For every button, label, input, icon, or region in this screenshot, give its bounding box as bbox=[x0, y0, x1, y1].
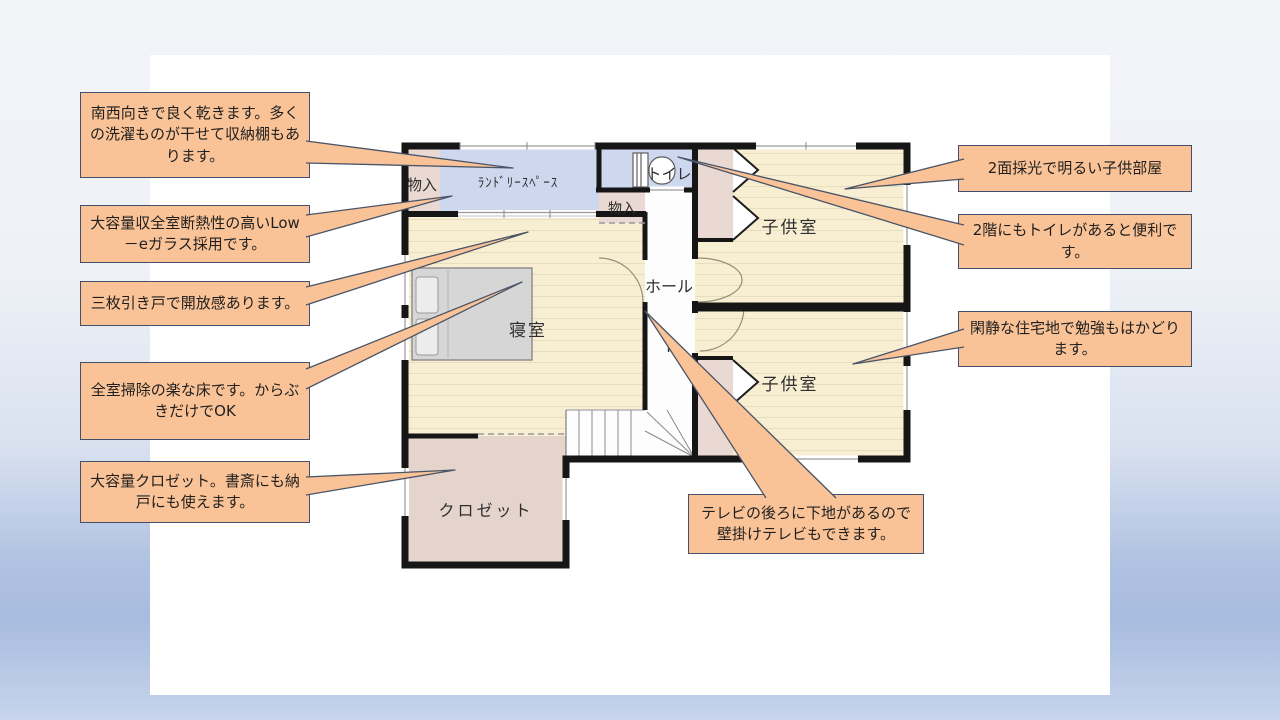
callout-closet-note: 大容量クロゼット。書斎にも納戸にも使えます。 bbox=[80, 461, 310, 523]
presentation-slide-page: { "slide": { "type": "floor-plan-present… bbox=[0, 0, 1280, 720]
callout-text: 全室掃除の楽な床です。からぶきだけでOK bbox=[89, 380, 301, 423]
callout-text: 大容量収全室断熱性の高いLow－eガラス採用です。 bbox=[89, 213, 301, 256]
room-label-hall: ホール bbox=[645, 277, 693, 296]
bed-icon bbox=[412, 268, 532, 360]
callout-text: 大容量クロゼット。書斎にも納戸にも使えます。 bbox=[89, 471, 301, 514]
room-label-kids-upper: 子供室 bbox=[762, 218, 819, 238]
room-label-storage2: 物入 bbox=[608, 201, 636, 217]
callout-text: 三枚引き戸で開放感あります。 bbox=[91, 293, 300, 314]
callout-toilet-note: 2階にもトイレがあると便利です。 bbox=[958, 214, 1192, 269]
callout-text: 南西向きで良く乾きます。多くの洗濯ものが干せて収納棚もあります。 bbox=[89, 103, 301, 167]
callout-lowe-glass-note: 大容量収全室断熱性の高いLow－eガラス採用です。 bbox=[80, 205, 310, 263]
room-label-laundry: ﾗﾝﾄﾞﾘｰｽﾍﾟｰｽ bbox=[478, 176, 559, 191]
sliding-door bbox=[458, 210, 596, 218]
north-label: N bbox=[666, 338, 677, 356]
toilet-door bbox=[650, 187, 684, 194]
callout-kids-light-note: 2面採光で明るい子供部屋 bbox=[958, 145, 1192, 192]
kids-closet-lower bbox=[695, 358, 733, 459]
room-hall bbox=[645, 190, 695, 462]
room-label-toilet: トイレ bbox=[646, 165, 691, 183]
callout-laundry-note: 南西向きで良く乾きます。多くの洗濯ものが干せて収納棚もあります。 bbox=[80, 92, 310, 178]
room-label-closet: クロゼット bbox=[438, 501, 533, 520]
callout-text: 閑静な住宅地で勉強もはかどります。 bbox=[967, 318, 1183, 361]
callout-tv-note: テレビの後ろに下地があるので壁掛けテレビもできます。 bbox=[688, 494, 924, 554]
callout-floor-note: 全室掃除の楽な床です。からぶきだけでOK bbox=[80, 362, 310, 440]
room-label-bedroom: 寝室 bbox=[509, 320, 547, 341]
kids-closet-upper bbox=[695, 146, 733, 240]
callout-text: 2面採光で明るい子供部屋 bbox=[988, 158, 1163, 179]
callout-sliding-door-note: 三枚引き戸で開放感あります。 bbox=[80, 281, 310, 326]
callout-text: テレビの後ろに下地があるので壁掛けテレビもできます。 bbox=[697, 503, 915, 546]
room-label-storage1: 物入 bbox=[407, 176, 437, 194]
callout-quiet-note: 閑静な住宅地で勉強もはかどります。 bbox=[958, 311, 1192, 367]
callout-text: 2階にもトイレがあると便利です。 bbox=[967, 220, 1183, 263]
room-label-kids-lower: 子供室 bbox=[762, 375, 819, 395]
